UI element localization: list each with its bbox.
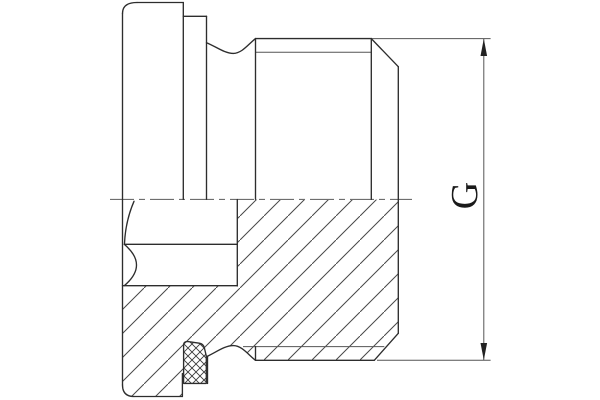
head-top-corner	[123, 3, 138, 14]
neck-groove-top	[207, 39, 256, 54]
socket-corner-arc	[125, 245, 137, 286]
seal-ring-crosshatch	[184, 342, 207, 384]
socket-countersink-arc	[125, 201, 135, 243]
steel-section-hatch	[123, 200, 399, 397]
dimension-arrow-up	[481, 39, 488, 56]
section-hatch-layer	[123, 200, 399, 397]
screw-plug-section-drawing: G	[0, 0, 600, 400]
dimension-arrow-down	[481, 343, 488, 360]
thread-size-dimension-label: G	[444, 182, 486, 209]
end-chamfer-top	[371, 39, 398, 67]
technical-drawing-canvas: G	[0, 0, 600, 400]
